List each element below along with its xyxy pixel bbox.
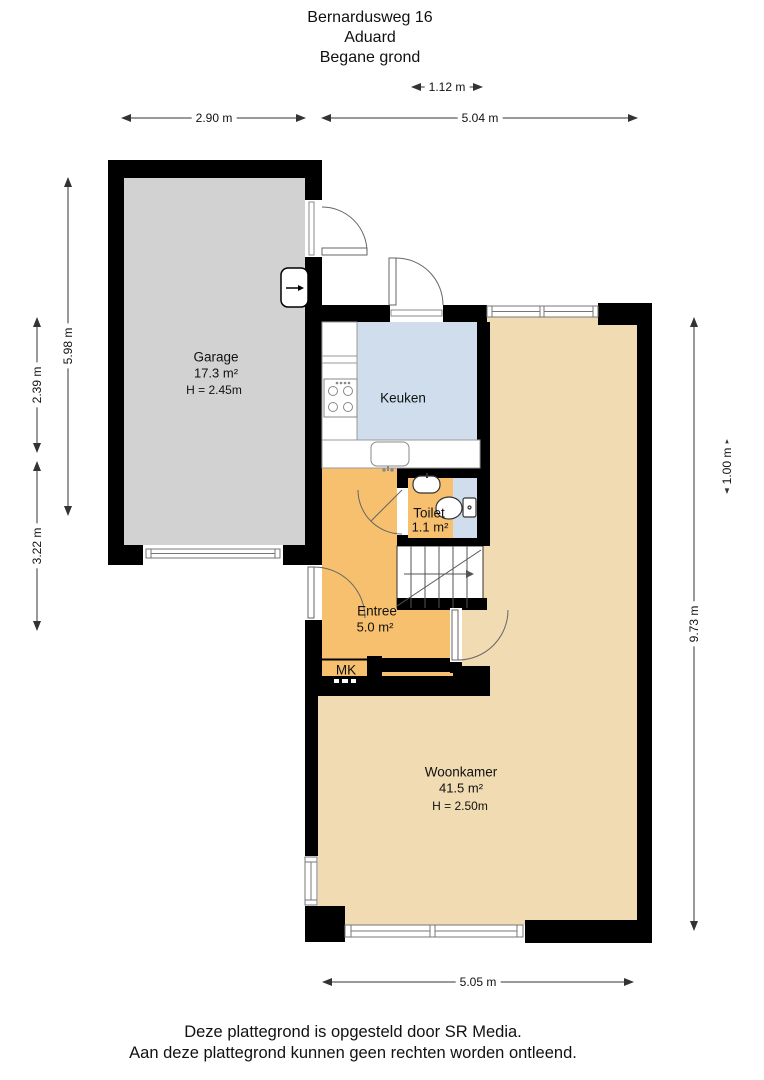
dim-house-width-bottom: 5.05 m xyxy=(456,975,501,989)
woonkamer-label: Woonkamer xyxy=(425,765,498,780)
garage-height-label: H = 2.45m xyxy=(186,383,242,397)
window-top-icon xyxy=(487,306,598,317)
stove-icon xyxy=(324,379,357,417)
entree-label: Entree xyxy=(357,604,397,619)
meterkast-label: MK xyxy=(336,663,356,678)
floorplan-page: Bernardusweg 16 Aduard Begane grond 1.12… xyxy=(0,0,764,1080)
dim-left-lower: 3.22 m xyxy=(30,524,44,569)
toilet-area-label: 1.1 m² xyxy=(412,520,449,535)
garage-door-icon xyxy=(146,549,280,558)
footer-line2: Aan deze plattegrond kunnen geen rechten… xyxy=(0,1043,706,1064)
floor-plan-canvas xyxy=(0,0,764,1080)
boiler-icon xyxy=(281,268,308,307)
dim-strip-width: 1.12 m xyxy=(425,80,470,94)
keuken-label: Keuken xyxy=(380,391,426,406)
dim-garage-width: 2.90 m xyxy=(192,111,237,125)
woonkamer-height-label: H = 2.50m xyxy=(432,799,488,813)
toilet-label: Toilet xyxy=(413,506,445,521)
window-bottom-icon xyxy=(345,925,523,937)
window-left-icon xyxy=(305,857,317,905)
garage-label: Garage xyxy=(193,350,238,365)
footer-line1: Deze plattegrond is opgesteld door SR Me… xyxy=(0,1022,706,1043)
meter-box-icon xyxy=(331,676,364,687)
footer-disclaimer: Deze plattegrond is opgesteld door SR Me… xyxy=(0,1022,706,1064)
woonkamer-area-label: 41.5 m² xyxy=(439,781,483,796)
dim-left-upper: 2.39 m xyxy=(30,363,44,408)
title-city: Aduard xyxy=(0,28,740,48)
title-address: Bernardusweg 16 xyxy=(0,8,740,28)
title-block: Bernardusweg 16 Aduard Begane grond xyxy=(0,8,740,68)
entree-area-label: 5.0 m² xyxy=(357,620,394,635)
dim-right-offset: 1.00 m xyxy=(720,444,734,489)
dim-house-width-top: 5.04 m xyxy=(458,111,503,125)
title-floor: Begane grond xyxy=(0,48,740,68)
dim-garage-depth: 5.98 m xyxy=(61,324,75,369)
dim-house-depth: 9.73 m xyxy=(687,602,701,647)
garage-area-label: 17.3 m² xyxy=(194,366,238,381)
